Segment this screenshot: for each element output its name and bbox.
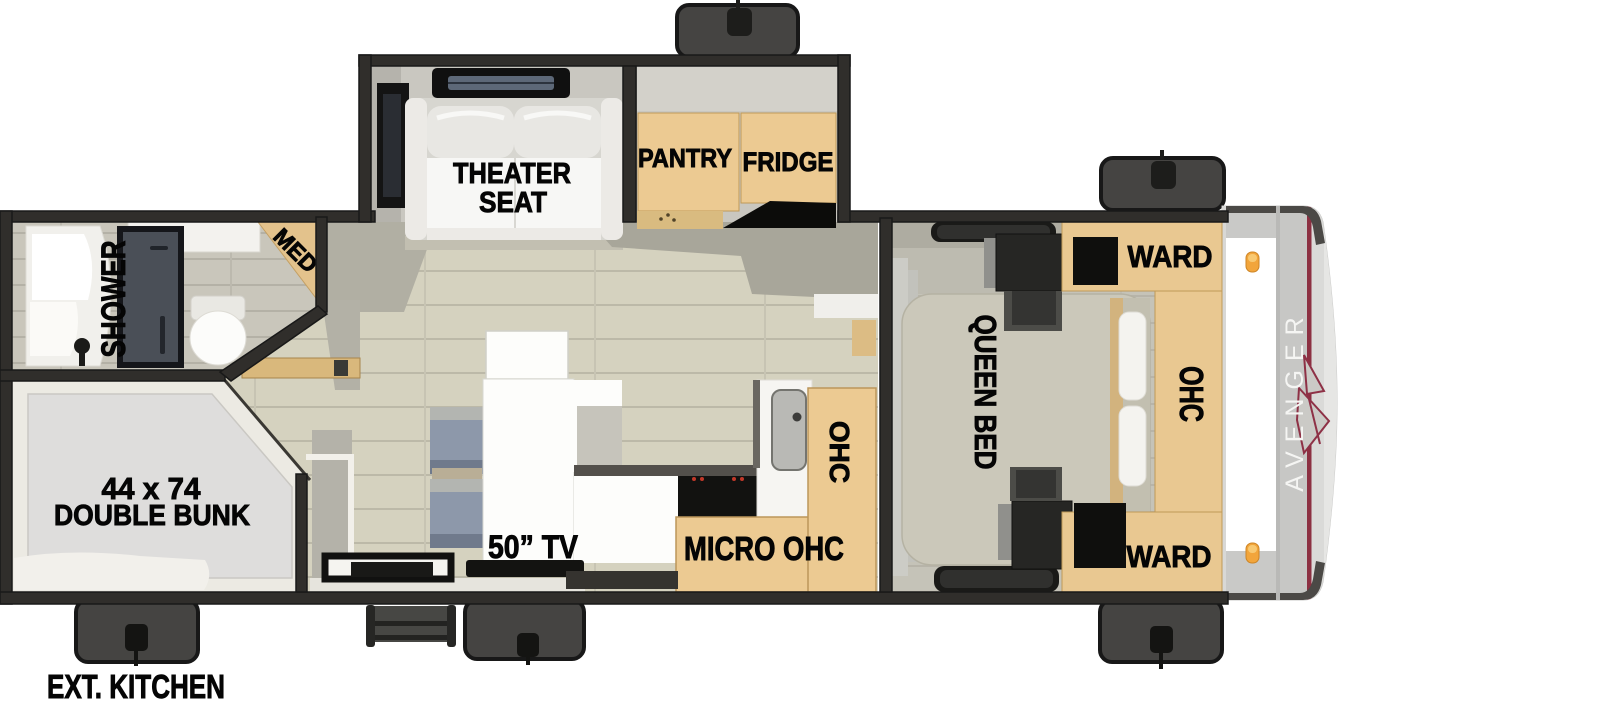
svg-text:DOUBLE BUNK: DOUBLE BUNK [54, 500, 250, 532]
svg-text:SEAT: SEAT [479, 187, 547, 219]
svg-text:EXT. KITCHEN: EXT. KITCHEN [47, 668, 225, 704]
svg-text:WARD: WARD [1128, 239, 1213, 274]
svg-text:50” TV: 50” TV [488, 529, 579, 565]
svg-text:PANTRY: PANTRY [638, 143, 732, 173]
svg-text:AVENGER: AVENGER [1281, 308, 1309, 491]
svg-text:OHC: OHC [824, 421, 855, 483]
svg-text:QUEEN BED: QUEEN BED [968, 315, 1003, 470]
svg-text:SHOWER: SHOWER [95, 241, 133, 358]
svg-text:MICRO OHC: MICRO OHC [684, 530, 844, 567]
svg-text:THEATER: THEATER [453, 158, 571, 190]
svg-text:OHC: OHC [1173, 366, 1210, 422]
svg-text:WARD: WARD [1127, 539, 1212, 574]
svg-text:FRIDGE: FRIDGE [743, 147, 834, 177]
